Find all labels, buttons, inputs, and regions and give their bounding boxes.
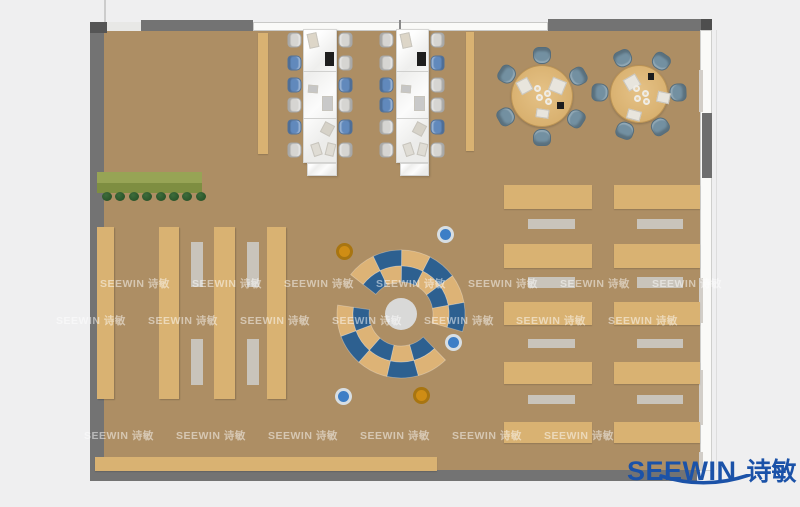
desk-row (614, 422, 700, 443)
table-plate (633, 85, 640, 92)
round-table-chair (669, 83, 687, 102)
stool-blue (335, 388, 352, 405)
watermark-text: SEEWIN 诗敏 (56, 313, 126, 325)
chair (288, 98, 302, 113)
stool-seat (416, 390, 427, 401)
bench-seat (637, 339, 683, 348)
chair (339, 120, 353, 135)
bottom-counter (95, 457, 437, 471)
workstation-end-table (307, 163, 337, 176)
plant-icon (129, 192, 139, 201)
chair (431, 78, 445, 93)
bench-seat (528, 339, 575, 348)
table-device (648, 73, 654, 80)
exterior-line (716, 30, 717, 470)
chair (339, 143, 353, 158)
chair (339, 78, 353, 93)
plant-icon (156, 192, 166, 201)
stool-orange (336, 243, 353, 260)
chair (380, 78, 394, 93)
chair (339, 98, 353, 113)
right-wall-block (699, 70, 703, 112)
left-wall-cap (90, 22, 107, 33)
stool-seat (339, 246, 350, 257)
watermark-text: SEEWIN 诗敏 (148, 313, 218, 325)
table-paper (656, 91, 671, 104)
watermark-text: SEEWIN 诗敏 (424, 313, 494, 325)
round-table-chair (591, 83, 609, 102)
table-plate (634, 95, 641, 102)
chair (431, 33, 445, 48)
chair (380, 33, 394, 48)
desk-row (614, 185, 700, 209)
plant-icon (169, 192, 179, 201)
plant-icon (102, 192, 112, 201)
watermark-text: SEEWIN 诗敏 (284, 276, 354, 288)
chair (288, 143, 302, 158)
desk-item (417, 52, 426, 66)
desk-item (414, 96, 425, 111)
chair (380, 56, 394, 71)
amphitheater-seat-segment (390, 345, 414, 362)
desk-row (504, 185, 592, 209)
watermark-text: SEEWIN 诗敏 (360, 428, 430, 440)
bench-seat (528, 219, 575, 229)
desk-item (325, 52, 334, 66)
chair (431, 98, 445, 113)
table-paper (535, 108, 549, 119)
table-device (557, 102, 564, 109)
watermark-text: SEEWIN 诗敏 (240, 313, 310, 325)
round-table-chair (533, 47, 551, 64)
watermark-text: SEEWIN 诗敏 (652, 276, 722, 288)
table-plate (545, 98, 552, 105)
chair (380, 143, 394, 158)
door-gap (104, 22, 141, 31)
floorplan-canvas: SEEWIN诗敏 SEEWIN 诗敏SEEWIN 诗敏SEEWIN 诗敏SEEW… (0, 0, 800, 507)
chair (431, 143, 445, 158)
chair (288, 33, 302, 48)
stool-seat (338, 391, 349, 402)
round-table-chair (533, 129, 551, 146)
desk-item (322, 96, 333, 111)
desk-row (614, 362, 700, 384)
study-table (247, 339, 259, 385)
logo-chinese: 诗敏 (747, 458, 797, 486)
top-wall-right (548, 19, 703, 31)
chair (431, 120, 445, 135)
table-divider (303, 71, 337, 72)
desk-item (308, 85, 319, 94)
stool-seat (440, 229, 451, 240)
side-bench (466, 32, 474, 151)
bench-seat (637, 395, 683, 404)
chair (339, 33, 353, 48)
exterior-line (104, 0, 106, 22)
watermark-text: SEEWIN 诗敏 (560, 276, 630, 288)
watermark-text: SEEWIN 诗敏 (468, 276, 538, 288)
desk-row (504, 244, 592, 268)
chair (288, 56, 302, 71)
chair (339, 56, 353, 71)
seewin-logo: SEEWIN诗敏 (627, 452, 797, 488)
stool-orange (413, 387, 430, 404)
chair (431, 56, 445, 71)
desk-row (614, 244, 700, 268)
desk-item (401, 85, 412, 94)
table-divider (396, 118, 429, 119)
chair (380, 98, 394, 113)
bench-seat (637, 219, 683, 229)
chair (288, 78, 302, 93)
bench-seat (528, 395, 575, 404)
side-bench (258, 33, 268, 154)
chair (380, 120, 394, 135)
table-divider (396, 71, 429, 72)
table-plate (534, 85, 541, 92)
watermark-text: SEEWIN 诗敏 (176, 428, 246, 440)
chair (288, 120, 302, 135)
right-wall-pillar (702, 113, 712, 178)
amphitheater-seat-segment (387, 360, 418, 378)
watermark-text: SEEWIN 诗敏 (84, 428, 154, 440)
watermark-text: SEEWIN 诗敏 (268, 428, 338, 440)
watermark-text: SEEWIN 诗敏 (332, 313, 402, 325)
logo-swoosh-icon (659, 474, 751, 488)
watermark-text: SEEWIN 诗敏 (376, 276, 446, 288)
stool-blue (445, 334, 462, 351)
planter-box (97, 172, 202, 183)
watermark-text: SEEWIN 诗敏 (192, 276, 262, 288)
table-divider (303, 118, 337, 119)
desk-row (504, 362, 592, 384)
watermark-text: SEEWIN 诗敏 (608, 313, 678, 325)
table-plate (544, 90, 551, 97)
watermark-text: SEEWIN 诗敏 (100, 276, 170, 288)
study-table (191, 339, 203, 385)
bottom-wall (90, 470, 697, 481)
stool-seat (448, 337, 459, 348)
stool-blue (437, 226, 454, 243)
table-plate (536, 94, 543, 101)
watermark-text: SEEWIN 诗敏 (452, 428, 522, 440)
table-plate (643, 98, 650, 105)
workstation-end-table (400, 163, 429, 176)
watermark-text: SEEWIN 诗敏 (544, 428, 614, 440)
top-wall-left (141, 20, 253, 31)
watermark-text: SEEWIN 诗敏 (516, 313, 586, 325)
plant-icon (196, 192, 206, 201)
table-plate (642, 90, 649, 97)
